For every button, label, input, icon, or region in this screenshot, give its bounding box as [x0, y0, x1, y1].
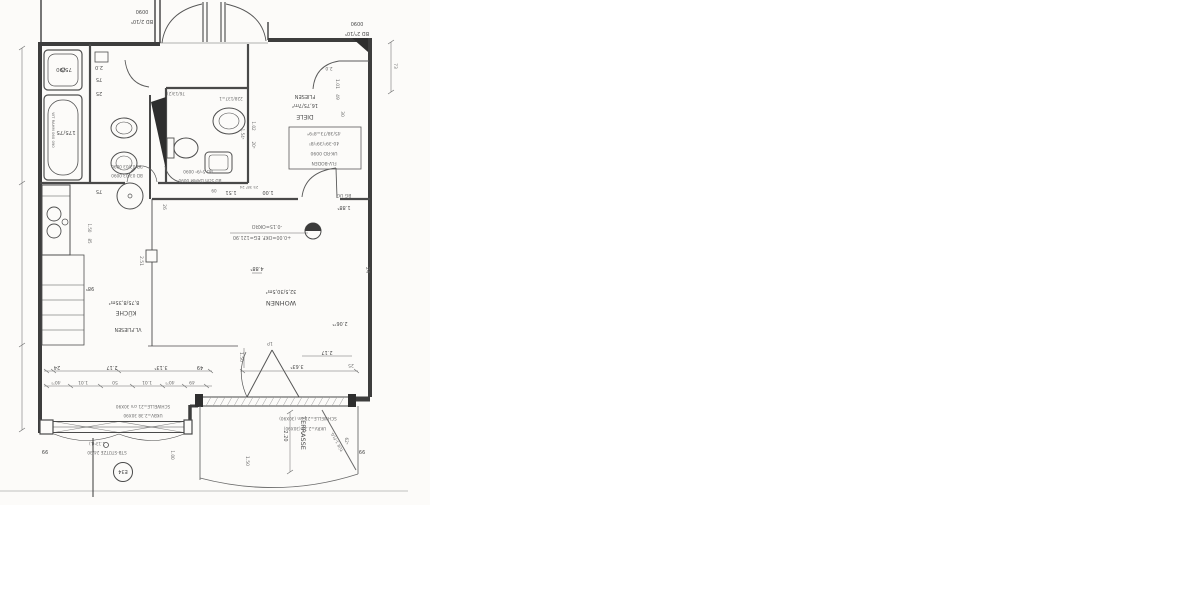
sill-note: SCHWELLE=21 cm 30X90: [116, 404, 171, 409]
wc-note: 228/137=1: [219, 96, 243, 101]
sill-note: UKBV=2.38 30X90: [123, 413, 162, 418]
dim: 40⁷⁵: [51, 379, 61, 385]
dim: 1.50: [244, 456, 250, 466]
dim: 24: [54, 364, 60, 370]
dim: 1.00: [170, 450, 175, 460]
room-floor-kueche: VL.FLIESEN: [114, 326, 141, 332]
dim: 1.51: [225, 189, 236, 195]
dim: 25: [348, 362, 354, 368]
dim: 20⁵: [251, 141, 256, 148]
dim: 09: [211, 188, 217, 193]
column-note: STB-STÜTZE 24/30: [87, 450, 127, 455]
door-note: 0090: [136, 8, 149, 14]
dim: 62⁵: [344, 437, 349, 444]
dim: 85: [87, 238, 92, 244]
dim: 2.0: [95, 64, 103, 70]
bd-note: BD 5⁵/9⁵ 0090: [183, 169, 213, 174]
door-note: BD 2/10⁵: [131, 18, 153, 24]
dim: 2.06⁷⁵: [332, 320, 347, 326]
dim: 99: [359, 448, 365, 454]
dim: 30: [339, 111, 345, 117]
dim: 2.51: [138, 256, 144, 266]
dim: 1.01: [78, 379, 88, 385]
dim: 25 38⁵ 24: [239, 185, 258, 190]
bd-note: BD 03/03 0090: [111, 164, 143, 169]
dim: 24: [364, 267, 370, 273]
room-label-kueche: KÜCHE: [115, 309, 136, 316]
room-label-wohnen: WOHNEN: [266, 299, 296, 307]
diele-note: FLV-BODEN: [311, 160, 336, 166]
dim: 1.88⁵: [337, 204, 350, 210]
dim: 1.50: [87, 224, 92, 233]
dim: 49: [197, 364, 203, 370]
dim: 3.13⁵: [154, 364, 167, 370]
room-label-terrasse: TERRASSE: [299, 415, 307, 450]
room-label-diele: DIELE: [296, 113, 314, 120]
wc-note: 76/13(2): [167, 91, 185, 96]
bd-note: BD 03/03 0090: [111, 173, 143, 178]
dim: 98⁵: [86, 285, 94, 291]
dim: 49: [189, 379, 195, 385]
level-minus: -0.15=OKRO: [252, 223, 283, 229]
dim: 1.01: [334, 79, 340, 89]
dim: 26: [161, 204, 167, 210]
dim: 2.17: [106, 364, 117, 370]
dim: 2.20: [282, 430, 288, 441]
dim: 1P: [267, 340, 273, 346]
diele-note: 45/38/73=8⁵9⁴: [307, 130, 341, 136]
dim: 1.00: [262, 189, 273, 195]
door-note: 0090: [351, 20, 364, 26]
diele-note: UK-RD 0090: [310, 150, 337, 156]
e34-label: E34: [118, 468, 128, 474]
dim: 2.0: [325, 65, 332, 71]
dim: 75: [96, 76, 102, 82]
bd-note: BD 5cm DÄMM 0090: [178, 178, 221, 183]
dim: 3.63⁵: [290, 363, 303, 369]
dim: 1.02: [251, 121, 256, 131]
door-note: BD 2⁵/10⁵: [345, 30, 369, 36]
floor-plan-drawing: 0090 BD 2/10⁵ 0090 BD 2⁵/10⁵ 75/90 175/7…: [0, 0, 1200, 600]
dim: 50: [112, 379, 118, 385]
dim: 4.88⁵: [250, 265, 263, 271]
dim: 1.50: [238, 352, 244, 362]
shower-size-label: 75/90: [56, 66, 72, 72]
dim: 25: [96, 90, 102, 96]
dim: 99: [42, 448, 48, 454]
dim: 75: [96, 188, 102, 194]
dim: 40⁷⁵: [165, 379, 175, 385]
room-area-wohnen: 32,5/30,5m²: [266, 288, 297, 294]
tub-size-label: 175/75: [56, 129, 76, 135]
dim: 1.54⁵: [240, 128, 245, 139]
dim: 73: [392, 63, 398, 69]
scan-area: [0, 0, 430, 505]
divider-post: [146, 250, 157, 262]
scanned-floor-plan-page: 0090 BD 2/10⁵ 0090 BD 2⁵/10⁵ 75/90 175/7…: [0, 0, 1200, 600]
room-area-diele: 16,75/7m²: [292, 102, 318, 108]
diele-note: 40-39⁵/39⁵/8⁵: [309, 140, 339, 146]
note-bg-ug: BG UG: [336, 192, 351, 198]
dim: 2.17: [321, 349, 332, 355]
tub-note: WT RAHM 060 090: [51, 112, 56, 148]
dim: 1.01: [142, 379, 152, 385]
room-floor-diele: FLIESEN: [295, 93, 316, 99]
dim: 49: [334, 94, 340, 100]
room-area-kueche: 8,75/8,35m²: [109, 299, 140, 305]
level-plus: +0.00=OKF. EG=121.90: [233, 234, 291, 240]
column-note: 1.13⁵(L): [89, 441, 105, 446]
